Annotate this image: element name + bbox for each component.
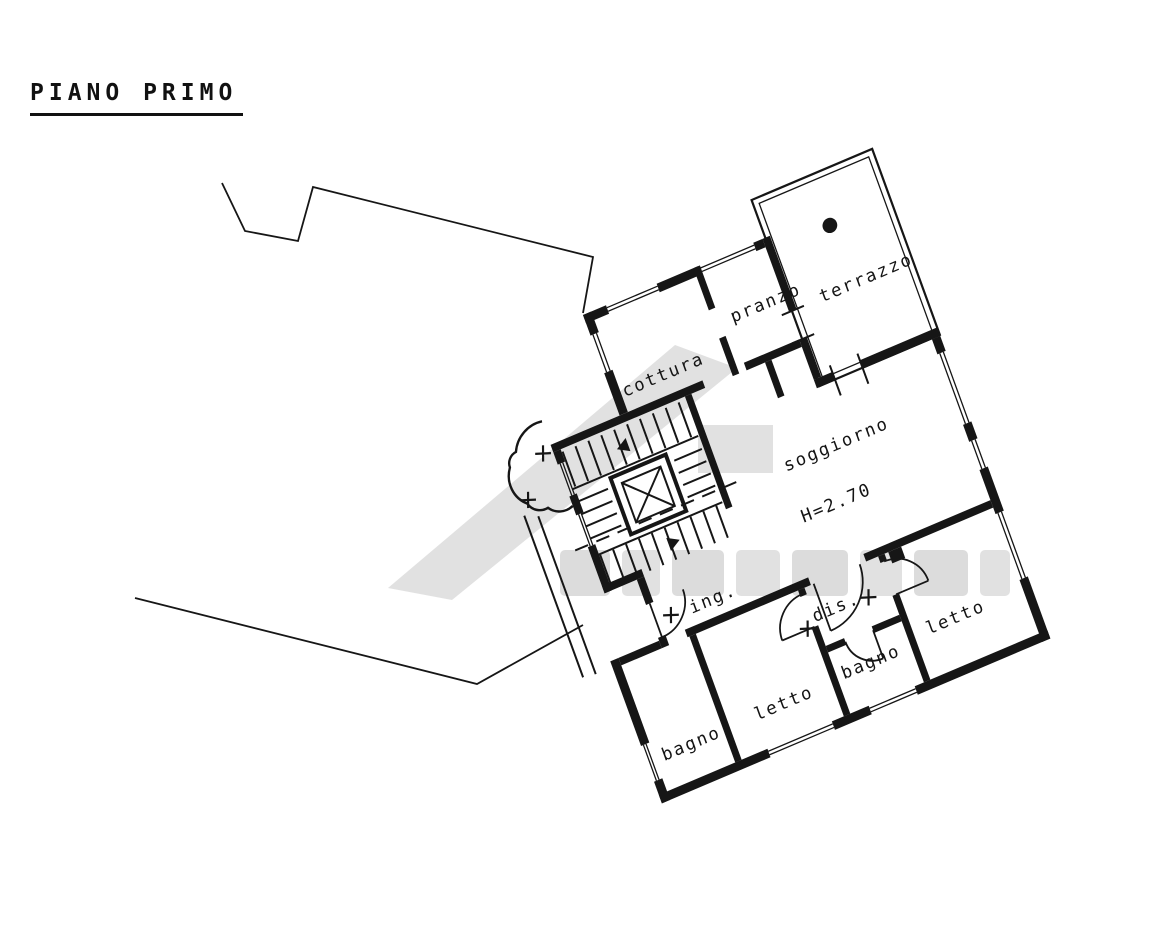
ceiling-height-label: H=2.70 bbox=[799, 479, 875, 527]
floor-plan-drawing: cottura pranzo terrazzo soggiorno H=2.70… bbox=[0, 0, 1169, 945]
floor-plan-sheet: PIANO PRIMO bbox=[0, 0, 1169, 945]
room-label-bagno-1: bagno bbox=[659, 723, 724, 766]
room-label-soggiorno: soggiorno bbox=[781, 414, 892, 477]
site-boundary-upper bbox=[222, 183, 593, 313]
room-label-terrazzo: terrazzo bbox=[817, 249, 916, 307]
room-label-letto-2: letto bbox=[923, 596, 988, 639]
terrazzo-drain-dot bbox=[820, 215, 839, 235]
site-boundary-lower bbox=[135, 598, 583, 684]
room-label-letto-1: letto bbox=[752, 682, 817, 725]
